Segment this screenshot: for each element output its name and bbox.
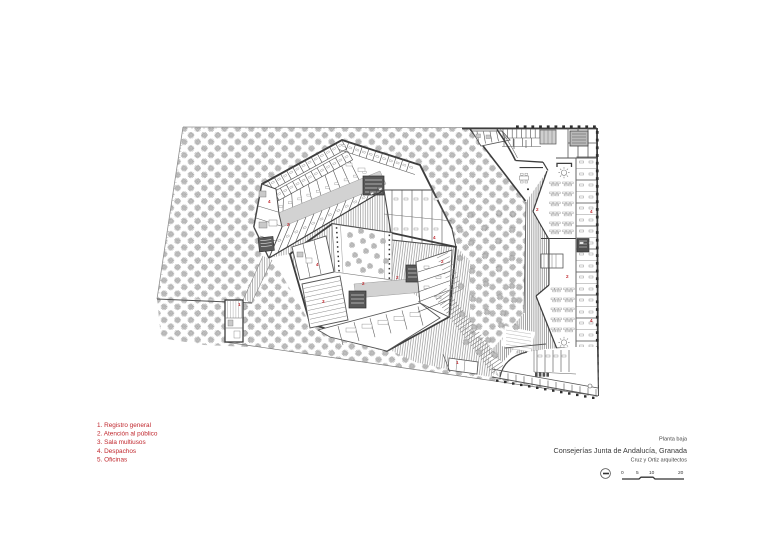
svg-text:5: 5 [636, 470, 639, 476]
svg-text:Consejerías Junta de Andalucía: Consejerías Junta de Andalucía, Granada [554, 446, 687, 455]
svg-text:2. Atención al público: 2. Atención al público [97, 431, 158, 438]
svg-text:4: 4 [590, 209, 593, 214]
svg-text:1. Registro general: 1. Registro general [97, 422, 151, 429]
svg-text:3: 3 [322, 299, 325, 304]
svg-text:4: 4 [433, 235, 436, 240]
svg-text:4: 4 [316, 262, 319, 267]
svg-text:1: 1 [238, 302, 241, 307]
svg-text:Planta baja: Planta baja [659, 437, 688, 443]
svg-text:4: 4 [268, 199, 271, 204]
svg-text:2: 2 [362, 281, 365, 286]
svg-text:2: 2 [441, 259, 444, 264]
svg-text:2: 2 [396, 275, 399, 280]
svg-text:Cruz y Ortiz arquitectos: Cruz y Ortiz arquitectos [631, 458, 688, 464]
svg-text:3. Sala multiusos: 3. Sala multiusos [97, 439, 146, 446]
svg-text:2: 2 [536, 207, 539, 212]
svg-text:4. Despachos: 4. Despachos [97, 448, 136, 455]
svg-text:5. Oficinas: 5. Oficinas [97, 456, 127, 463]
svg-text:1: 1 [456, 360, 459, 365]
svg-text:20: 20 [678, 470, 684, 476]
svg-text:0: 0 [621, 470, 624, 476]
svg-text:10: 10 [649, 470, 655, 476]
svg-text:2: 2 [287, 222, 290, 227]
svg-text:4: 4 [590, 318, 593, 323]
svg-text:2: 2 [566, 274, 569, 279]
